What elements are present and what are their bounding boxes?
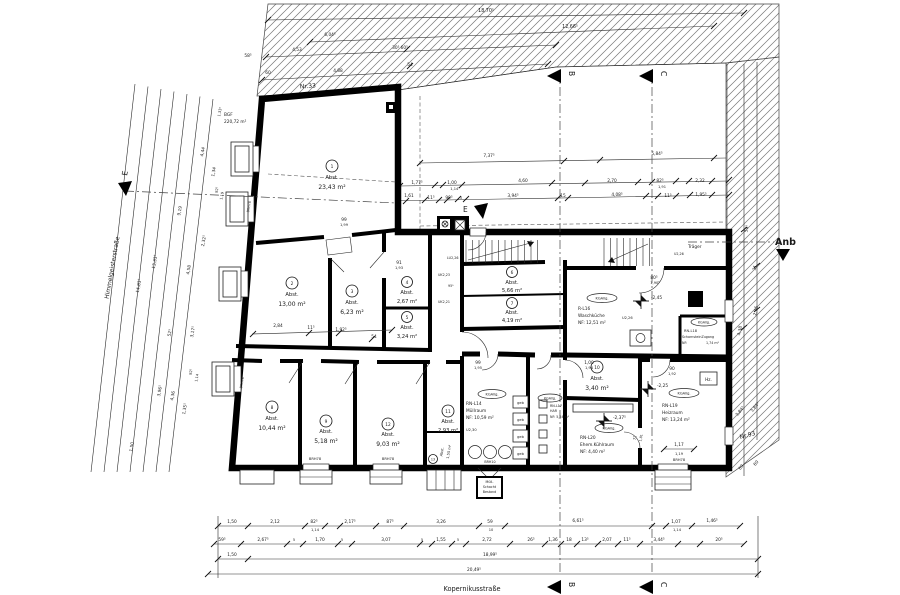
dim-label: 1,90⁵ xyxy=(650,281,660,285)
dim-label: 1,50 xyxy=(128,441,136,452)
dim-label: 2,72 xyxy=(482,537,492,543)
street-left-label: Himmelgeisterstraße xyxy=(104,236,122,300)
dim-label: 6,04⁵ xyxy=(324,32,336,38)
dim-label: 18,99⁵ xyxy=(483,552,497,558)
room-type: Abst. xyxy=(505,310,519,316)
room-nf: 1,74 m² xyxy=(706,341,720,345)
dim-label: 1,50 xyxy=(227,519,237,525)
room-nf: NF: 13,24 m² xyxy=(662,417,690,423)
geb-box-label: geb xyxy=(517,435,524,439)
brh10-label: BRH10 xyxy=(484,460,495,464)
section-b-label: B xyxy=(567,582,576,587)
kg-tag: KGAllg. xyxy=(595,297,608,301)
dim-label: 1,33⁵ xyxy=(217,106,223,117)
room-name: SchornsteinZugang xyxy=(682,335,714,339)
level-label: -2,45 xyxy=(651,295,662,301)
dim-label: 1,14 xyxy=(194,373,199,382)
bgf-title: BGF xyxy=(224,112,233,118)
room-name: HAR xyxy=(550,409,558,413)
muellschacht-label: Bestand xyxy=(483,490,497,494)
dim-label: 1,50 xyxy=(227,552,237,558)
room-area: 3,40 m² xyxy=(585,385,609,392)
dim-label: 12,66⁵ xyxy=(562,24,578,30)
dim-label: 60 xyxy=(752,459,760,467)
room-nf: NF: 10,59 m² xyxy=(466,415,494,421)
room-id: RN-L17 xyxy=(550,404,562,408)
dim-label: 9,19 xyxy=(176,205,184,216)
dim-label: 30⁵ 60⁵ xyxy=(392,45,408,51)
dim-label: 1,70 xyxy=(315,537,325,543)
entrance-block xyxy=(437,216,469,232)
dim-label: 99⁵ xyxy=(445,195,452,201)
kg-tag: KGAllg. xyxy=(698,321,710,325)
dim-label: 3,26 xyxy=(436,519,446,525)
dim-label: 20,49⁵ xyxy=(467,567,481,573)
room-area: 5,66 m² xyxy=(502,288,522,294)
dim-label: 58⁵ xyxy=(244,53,251,59)
room-area: 6,23 m² xyxy=(340,309,364,316)
room-number: 5 xyxy=(406,315,409,321)
dim-label: 26⁵ xyxy=(527,537,534,543)
room-type: Abst. xyxy=(319,429,333,435)
dim-label: 82⁵ xyxy=(310,519,317,525)
dim-label: 1,61 xyxy=(404,193,414,199)
level-label: -2,37⁵ xyxy=(613,415,626,421)
room-nf: NF: 5,24 m² xyxy=(550,415,570,419)
dim-label: 54 xyxy=(407,62,413,68)
room-name: Heizraum xyxy=(662,410,683,416)
dim-label: 5,84⁵ xyxy=(651,151,663,157)
dim-label: 1,46⁵ xyxy=(706,518,718,524)
room-type: Abst. xyxy=(381,432,395,438)
clearance-label: UK2,23 xyxy=(438,273,450,277)
room-id: RN-L20 xyxy=(580,435,596,441)
dim-label: 4,88 xyxy=(333,68,343,74)
room-number: 6 xyxy=(511,270,514,276)
dim-label: 4,08⁵ xyxy=(611,192,623,198)
kg-tag: KGAllg. xyxy=(485,393,498,397)
dim-label: 3,96⁵ xyxy=(156,384,164,396)
room-number: 11 xyxy=(445,409,451,415)
muellschacht-label: Müll- xyxy=(486,480,495,484)
room-area: 2,67 m² xyxy=(397,299,417,305)
muellschacht-label: Schacht xyxy=(483,485,497,489)
section-e-label: E xyxy=(463,205,468,214)
room-type: Abst. xyxy=(505,280,519,286)
dim-label: 11⁵ xyxy=(307,325,314,331)
dim-label: 3,07 xyxy=(381,537,391,543)
kg-tag: KGAllg. xyxy=(544,397,556,401)
clearance-label: LU2,26 xyxy=(447,256,458,260)
dim-label: 2,84 xyxy=(273,323,283,329)
dim-label: 1,92 xyxy=(668,372,676,376)
room-number: 9 xyxy=(325,419,328,425)
dim-label: 2,32 xyxy=(695,178,705,184)
room-name: Müllraum xyxy=(466,408,486,414)
dim-label: 15 xyxy=(560,193,566,199)
dim-label: 82⁵ xyxy=(215,186,220,193)
section-e-label: E xyxy=(120,170,130,176)
dim-label: 87⁵ xyxy=(386,519,393,525)
dim-label: 18 xyxy=(566,537,572,543)
room-area: 3,24 m² xyxy=(397,334,417,340)
dim-label: 11⁵ xyxy=(664,193,671,199)
dim-label: 5 xyxy=(460,196,462,200)
dim-label: 52⁵ xyxy=(166,328,173,336)
dim-label: 4,44 xyxy=(199,146,207,157)
room-type: Abst. xyxy=(325,175,339,181)
room-name: Waschküche xyxy=(578,313,605,319)
floor-plan-page: 18,70⁵ 12,66⁵ 6,04⁵ 4,53 58⁵ 30⁵ 60⁵ 60 … xyxy=(0,0,900,595)
room-area: 13,00 m² xyxy=(278,301,306,308)
dim-label: 95⁵ xyxy=(448,284,454,288)
room-number: 7 xyxy=(511,301,514,307)
street-bottom-label: Kopernikusstraße xyxy=(443,585,500,593)
dim-label: 2,67⁵ xyxy=(257,537,269,543)
brh-label: BRH78 xyxy=(309,457,322,461)
dim-label: 60 xyxy=(265,70,271,76)
room-number: 2 xyxy=(291,281,294,287)
room-area: 5,18 m² xyxy=(314,438,338,445)
dim-label: 1,95⁵ xyxy=(695,192,707,198)
dim-label: 13⁵ xyxy=(581,537,588,543)
dim-label: 2,32⁵ xyxy=(200,234,208,246)
room-nf: NF: 12,51 m² xyxy=(578,320,606,326)
dim-label: 1,94 xyxy=(585,366,594,370)
dim-label: 1,36 xyxy=(548,537,558,543)
brh-label: BRH78 xyxy=(673,458,686,462)
dim-label: 11⁵ xyxy=(623,537,630,543)
room-type: Abst. xyxy=(441,419,455,425)
dim-label: 1,99 xyxy=(340,223,349,227)
dim-label: 3,94⁵ xyxy=(507,193,519,199)
kg-tag: KGAllg. xyxy=(677,392,690,396)
geb-box-label: geb xyxy=(517,401,524,405)
heating-unit-label: Hz. xyxy=(705,377,712,383)
dim-label: 72 xyxy=(633,435,638,440)
dim-label: 1,14 xyxy=(311,528,320,532)
room-id: RN-L18 xyxy=(684,329,698,333)
bgf-value: 220,72 m² xyxy=(224,119,247,125)
dim-label: 10 xyxy=(489,528,494,532)
section-b-label: B xyxy=(567,71,576,76)
dim-label: 14,83⁵ xyxy=(135,278,143,293)
dim-label: 7,37⁵ xyxy=(483,153,495,159)
dim-label: 2,12 xyxy=(270,519,280,525)
dim-label: 3,17⁵ xyxy=(189,325,197,337)
dim-label: 82⁵ xyxy=(656,178,663,184)
dim-label: 1,14 xyxy=(673,528,682,532)
room-type: Abst. xyxy=(285,292,299,298)
dim-label: 1,00 xyxy=(447,180,457,186)
room-type: Abst. xyxy=(265,416,279,422)
room-type: Abst. xyxy=(400,290,414,296)
dim-label: 1,92⁵ xyxy=(335,327,347,333)
geb-box-label: geb xyxy=(517,418,524,422)
room-id: RN-L19 xyxy=(662,403,678,409)
room-id: R-L16 xyxy=(578,306,590,312)
dim-label: 1,14⁵ xyxy=(450,187,460,191)
room-name: Ehem.Kühlraum xyxy=(580,442,614,448)
dim-label: 4,36 xyxy=(169,390,177,401)
dim-label: 5 xyxy=(341,538,343,542)
dim-label: 4,60 xyxy=(518,178,528,184)
dim-label: 1,35⁵ xyxy=(181,402,189,414)
clearance-label: U2,26 xyxy=(674,252,684,256)
site-dimensions-left: Himmelgeisterstraße 14,83⁵ 13,33⁵ 9,19 4… xyxy=(91,84,225,472)
room-type: Abst. xyxy=(400,325,414,331)
section-c-label: C xyxy=(659,71,668,76)
section-c-label: C xyxy=(659,582,668,587)
dim-label: 1,95 xyxy=(474,366,482,370)
room-number: 13 xyxy=(431,458,435,462)
dimensions-upper: 7,37⁵ 5,84⁵ 1,77⁵ 1,00 1,14⁵ 4,60 2,70 8… xyxy=(385,151,732,204)
room-id: RN-L14 xyxy=(466,401,482,407)
room-number: 10 xyxy=(594,365,600,371)
dim-label: 1,19 xyxy=(675,452,684,456)
floor-plan-drawing: 18,70⁵ 12,66⁵ 6,04⁵ 4,53 58⁵ 30⁵ 60⁵ 60 … xyxy=(0,0,900,595)
clearance-label: U2,26 xyxy=(622,316,633,320)
geb-box-label: geb xyxy=(517,452,524,456)
dim-label: 5 xyxy=(421,538,423,542)
dim-label: 5 xyxy=(293,538,295,542)
dim-label: 59 xyxy=(487,519,493,525)
clearance-label: U2,30 xyxy=(466,428,477,432)
room-number: 12 xyxy=(385,422,391,428)
dim-label: 6,61⁵ xyxy=(572,518,584,524)
room-area: 2,93 m² xyxy=(438,428,458,434)
room-type: Abst. xyxy=(345,300,359,306)
room-area: 10,44 m² xyxy=(258,425,286,432)
dim-label: 1,77⁵ xyxy=(411,180,423,186)
dim-label: 11⁵ xyxy=(427,195,434,201)
bgf-label: BGF 220,72 m² xyxy=(224,112,247,125)
dim-label: 1,17 xyxy=(674,442,684,448)
traeger-label: Träger xyxy=(687,244,702,250)
room-area: 9,03 m² xyxy=(376,441,400,448)
dim-label: 82⁵ xyxy=(189,368,194,375)
room-number: 3 xyxy=(351,289,354,295)
clearance-label: UK2,21 xyxy=(438,300,450,304)
dim-label: 1,07 xyxy=(671,519,681,525)
dim-label: 2,70 xyxy=(607,178,617,184)
dim-label: 13,33⁵ xyxy=(151,254,159,269)
dim-label: 59⁵ xyxy=(218,537,225,543)
neighbour-nr33-label: Nr.33 xyxy=(300,82,317,90)
room-type: Abst. xyxy=(590,376,604,382)
dim-label: 18,70⁵ xyxy=(478,8,494,14)
site-lines xyxy=(398,63,727,230)
room-number: 8 xyxy=(271,405,274,411)
room-area: 23,43 m² xyxy=(318,184,346,191)
dim-label: 5 xyxy=(457,538,459,542)
dim-label: 2,07 xyxy=(602,537,612,543)
dim-label: 4,58 xyxy=(185,264,193,275)
level-label: -2,25 xyxy=(657,383,668,389)
dim-label: 1,34 xyxy=(210,166,218,177)
room-nf: NF: 4,40 m² xyxy=(580,449,605,455)
dim-label: 3,44⁵ xyxy=(653,537,665,543)
dimensions-bottom: 1,50 2,12 82⁵ 1,14 2,17⁵ 87⁵ 3,26 59 10 … xyxy=(205,516,761,593)
dim-label: 4,53 xyxy=(292,47,302,53)
annex-label: Anb xyxy=(775,237,796,248)
room-number: 4 xyxy=(406,280,409,286)
dim-label: 20⁵ xyxy=(715,537,722,543)
room-number: 1 xyxy=(331,164,334,170)
room-nf: NF: xyxy=(682,341,687,345)
dim-label: 2,17⁵ xyxy=(344,519,356,525)
dim-label: 1,93 xyxy=(395,266,403,270)
dim-label: 1,91 xyxy=(658,185,666,189)
brh-label: BRH78 xyxy=(382,457,395,461)
room-area: 4,19 m² xyxy=(502,318,522,324)
dim-label: 1,55 xyxy=(436,537,446,543)
